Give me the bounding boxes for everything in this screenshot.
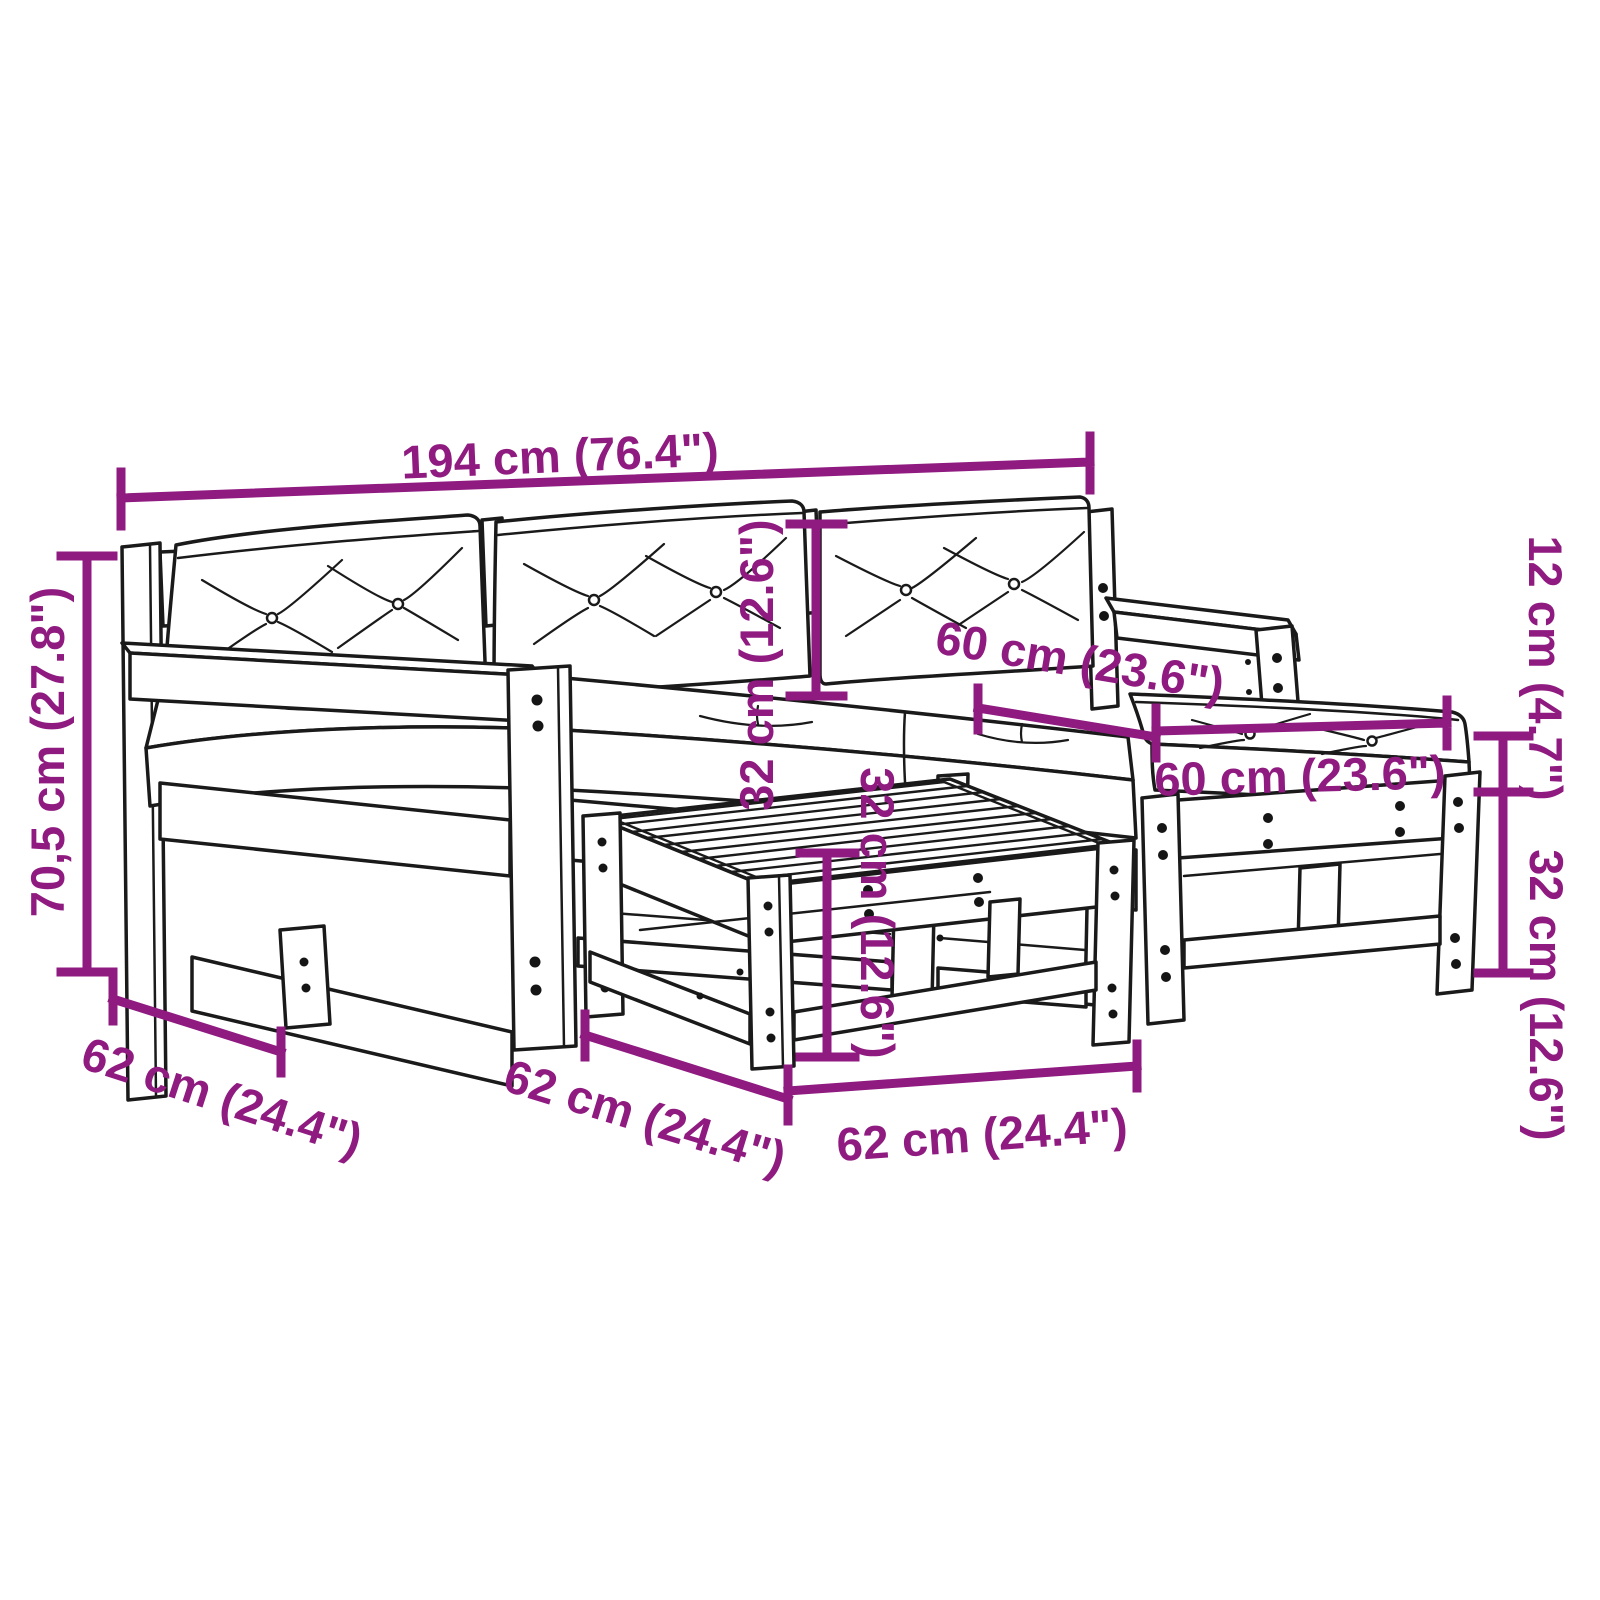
dim-label-table-width: 62 cm (24.4") xyxy=(835,1098,1129,1171)
ottoman-base xyxy=(1142,772,1480,1024)
dim-label-sofa-depth: 62 cm (24.4") xyxy=(75,1026,369,1166)
dim-label-table-depth: 62 cm (24.4") xyxy=(498,1049,792,1185)
product-dimension-diagram: 194 cm (76.4") 70,5 cm (27.8") 32 cm (12… xyxy=(0,0,1600,1600)
dim-label-ottoman-cushion-width: 60 cm (23.6") xyxy=(1154,745,1447,806)
diagram-svg: 194 cm (76.4") 70,5 cm (27.8") 32 cm (12… xyxy=(0,0,1600,1600)
dim-label-table-height: 32 cm (12.6") xyxy=(851,767,904,1058)
dim-label-backrest-cushion-height: 32 cm (12.6") xyxy=(730,519,783,810)
dim-label-cushion-thickness: 12 cm (4.7") xyxy=(1519,535,1572,800)
dim-label-ottoman-frame-height: 32 cm (12.6") xyxy=(1520,849,1573,1140)
ottoman-drawing xyxy=(1130,694,1480,1024)
dim-label-sofa-height: 70,5 cm (27.8") xyxy=(21,587,74,918)
